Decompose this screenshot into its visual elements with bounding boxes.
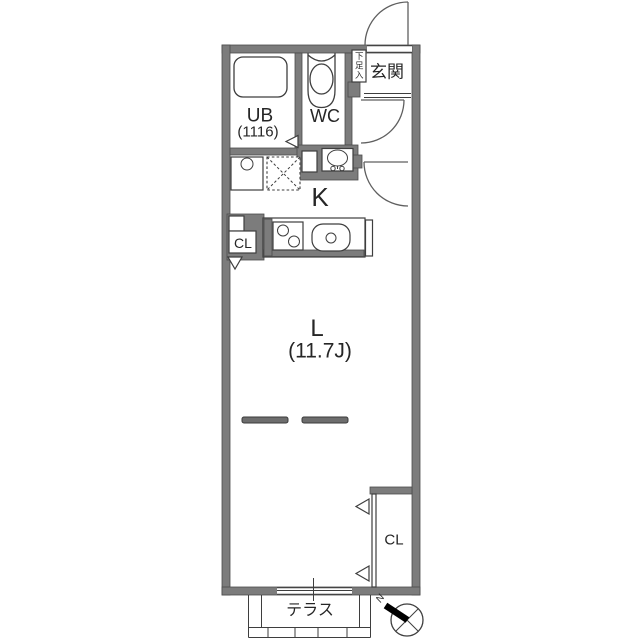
entrance-opening xyxy=(367,46,412,52)
kitchen-closet-label: CL xyxy=(234,236,252,250)
toilet xyxy=(308,53,335,108)
washbasin xyxy=(302,149,353,173)
ub-size-label: (1116) xyxy=(237,125,278,140)
living-label: L xyxy=(310,317,323,341)
bath-door-marker xyxy=(286,136,298,148)
wc-label: WC xyxy=(310,107,340,125)
terrace-label: テラス xyxy=(286,603,334,619)
terrace-window xyxy=(277,578,352,601)
partition-bars xyxy=(242,417,348,423)
room-door-arc xyxy=(364,162,408,206)
counter-end-panel xyxy=(366,220,373,256)
kitchen-label: K xyxy=(311,184,328,210)
entrance-label: 玄関 xyxy=(370,64,404,81)
floor-plan: 玄関 下足入 WC UB (1116) K CL L (11.7J) CL テラ… xyxy=(0,0,640,639)
bathtub xyxy=(234,57,287,97)
hall-door-arc xyxy=(361,100,404,143)
refrigerator-space xyxy=(267,157,300,190)
main-closet-label: CL xyxy=(384,533,403,548)
main-closet xyxy=(356,494,376,587)
stove xyxy=(273,222,303,250)
entrance-door-arc xyxy=(365,2,408,45)
north-compass xyxy=(386,604,424,636)
washing-machine-pan xyxy=(231,157,263,190)
shoe-cabinet-label: 下足入 xyxy=(355,52,364,81)
entrance-step-line xyxy=(364,94,411,98)
kitchen-sink xyxy=(312,224,350,251)
kitchen-counter xyxy=(263,218,373,257)
living-size-label: (11.7J) xyxy=(288,341,352,362)
